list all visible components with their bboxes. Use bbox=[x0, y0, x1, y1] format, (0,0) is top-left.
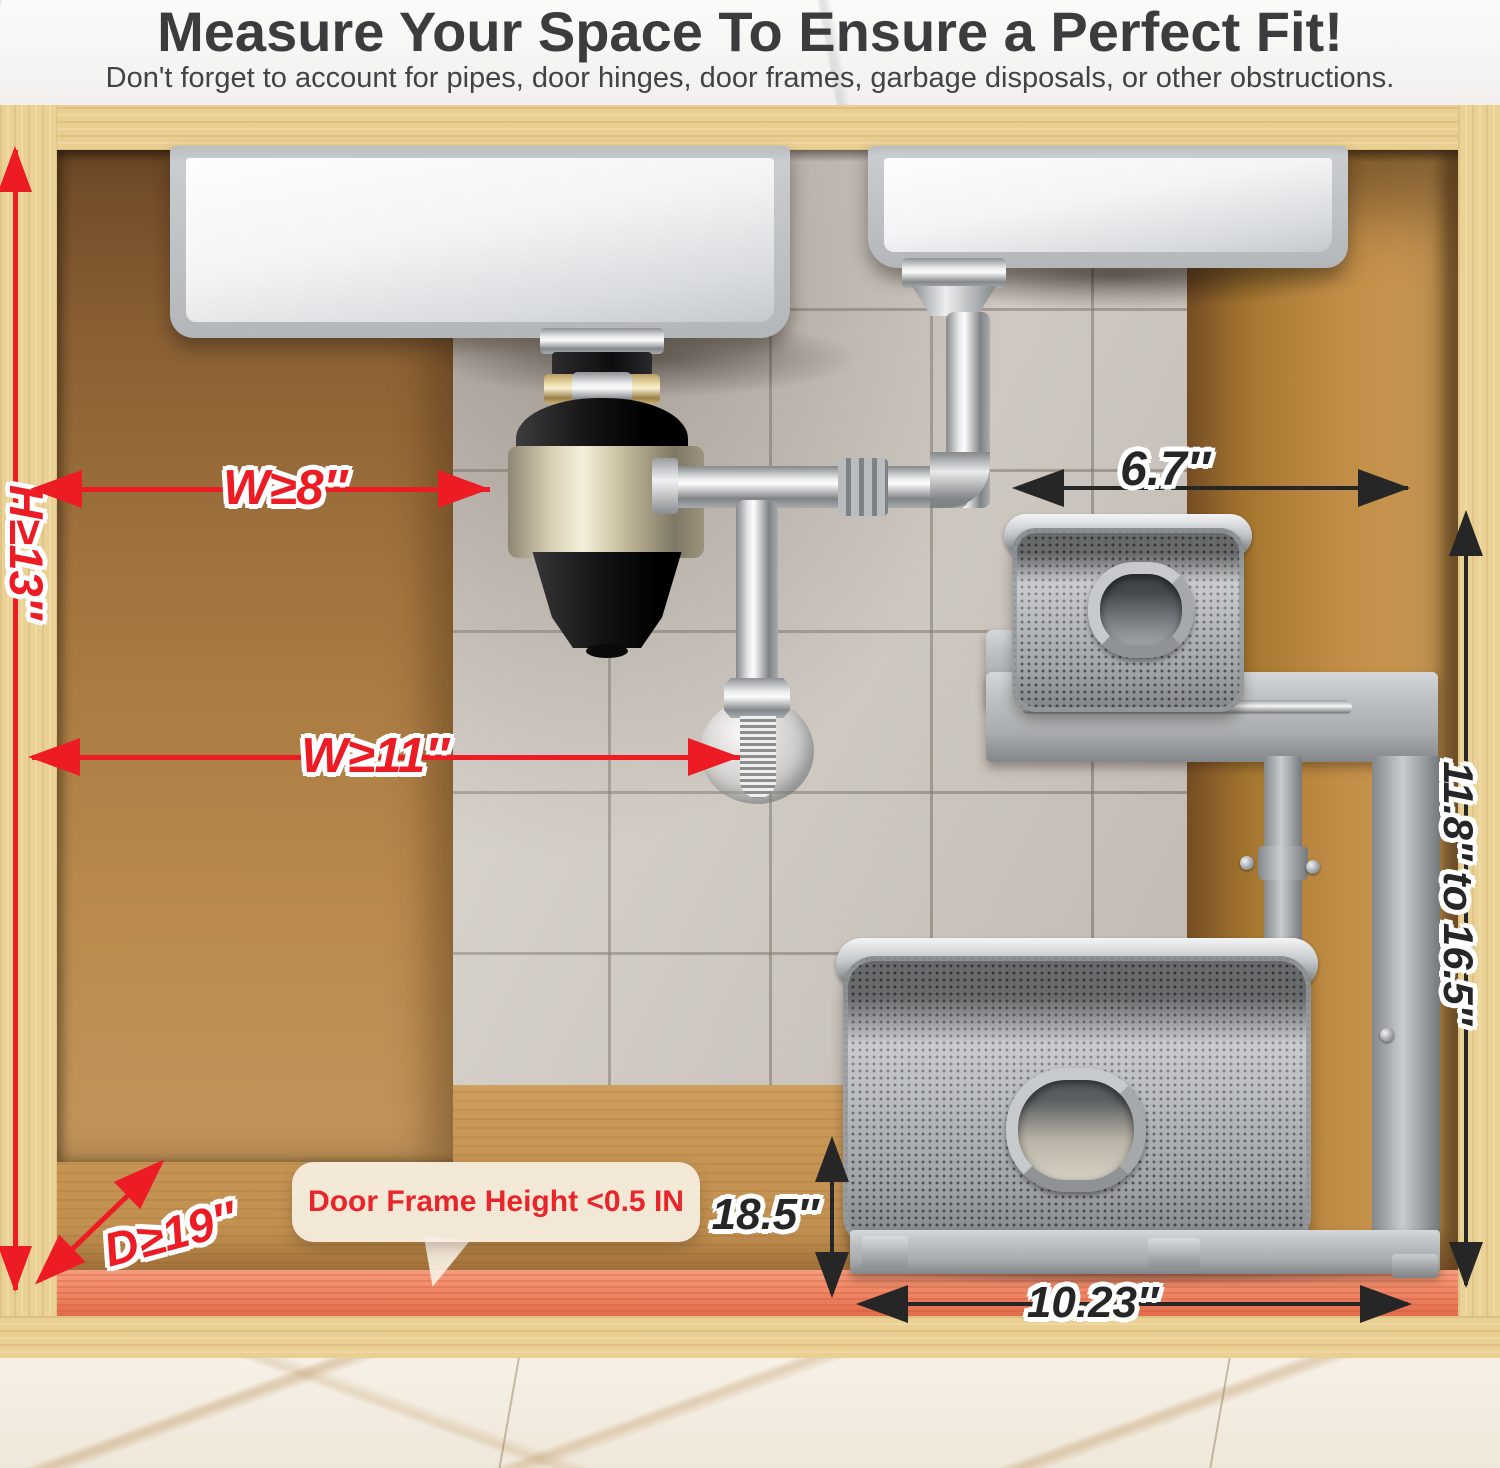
width8-measure-label: W≥8″ bbox=[160, 460, 410, 516]
door-frame-callout: Door Frame Height <0.5 IN bbox=[292, 1162, 700, 1242]
big-basket-handle bbox=[1006, 1068, 1146, 1192]
cabinet-left-frame bbox=[0, 105, 57, 1360]
slide-roller bbox=[1148, 1238, 1200, 1268]
cabinet-bottom-frame bbox=[0, 1316, 1500, 1360]
width11-measure-label: W≥11″ bbox=[245, 728, 505, 784]
speech-bubble-tail bbox=[417, 1235, 470, 1291]
disposal-flange bbox=[540, 328, 664, 354]
drain-flange-top bbox=[902, 258, 1006, 288]
tail-pipe-hex-nut bbox=[724, 678, 790, 718]
leg-screw bbox=[1380, 1028, 1394, 1042]
adjustable-height-label: 11.8″ to 16.5″ bbox=[1434, 683, 1482, 1103]
page-title: Measure Your Space To Ensure a Perfect F… bbox=[0, 2, 1500, 62]
marble-floor bbox=[0, 1358, 1500, 1468]
leg-screw bbox=[1240, 856, 1254, 870]
infographic: Measure Your Space To Ensure a Perfect F… bbox=[0, 0, 1500, 1468]
left-sink-face bbox=[186, 158, 774, 322]
rack-base-slide bbox=[850, 1230, 1440, 1274]
page-subtitle: Don't forget to account for pipes, door … bbox=[0, 62, 1500, 95]
drain-pipe-horizontal bbox=[666, 466, 968, 508]
basket-width-label: 10.23″ bbox=[1000, 1278, 1185, 1328]
tail-pipe bbox=[736, 500, 778, 688]
disposal-tip bbox=[586, 644, 628, 658]
small-basket-handle bbox=[1088, 562, 1194, 658]
right-sink-face bbox=[884, 158, 1332, 252]
leg-screw bbox=[1306, 860, 1320, 874]
tail-pipe-threads bbox=[740, 716, 776, 798]
door-frame-callout-text: Door Frame Height <0.5 IN bbox=[308, 1185, 684, 1219]
basket-height-label: 18.5″ bbox=[700, 1190, 830, 1240]
right-sink-basin bbox=[868, 146, 1348, 268]
countertop-edge bbox=[0, 105, 1500, 151]
pipe-disposal-coupling bbox=[652, 458, 678, 514]
left-sink-basin bbox=[170, 146, 790, 338]
rack-right-leg bbox=[1372, 756, 1440, 1264]
shelf-width-label: 6.7″ bbox=[1080, 442, 1250, 497]
slide-roller bbox=[862, 1236, 908, 1268]
leveling-foot bbox=[1392, 1254, 1438, 1278]
pipe-coupling-nut bbox=[838, 458, 888, 516]
rack-leg-joint bbox=[1258, 846, 1308, 880]
